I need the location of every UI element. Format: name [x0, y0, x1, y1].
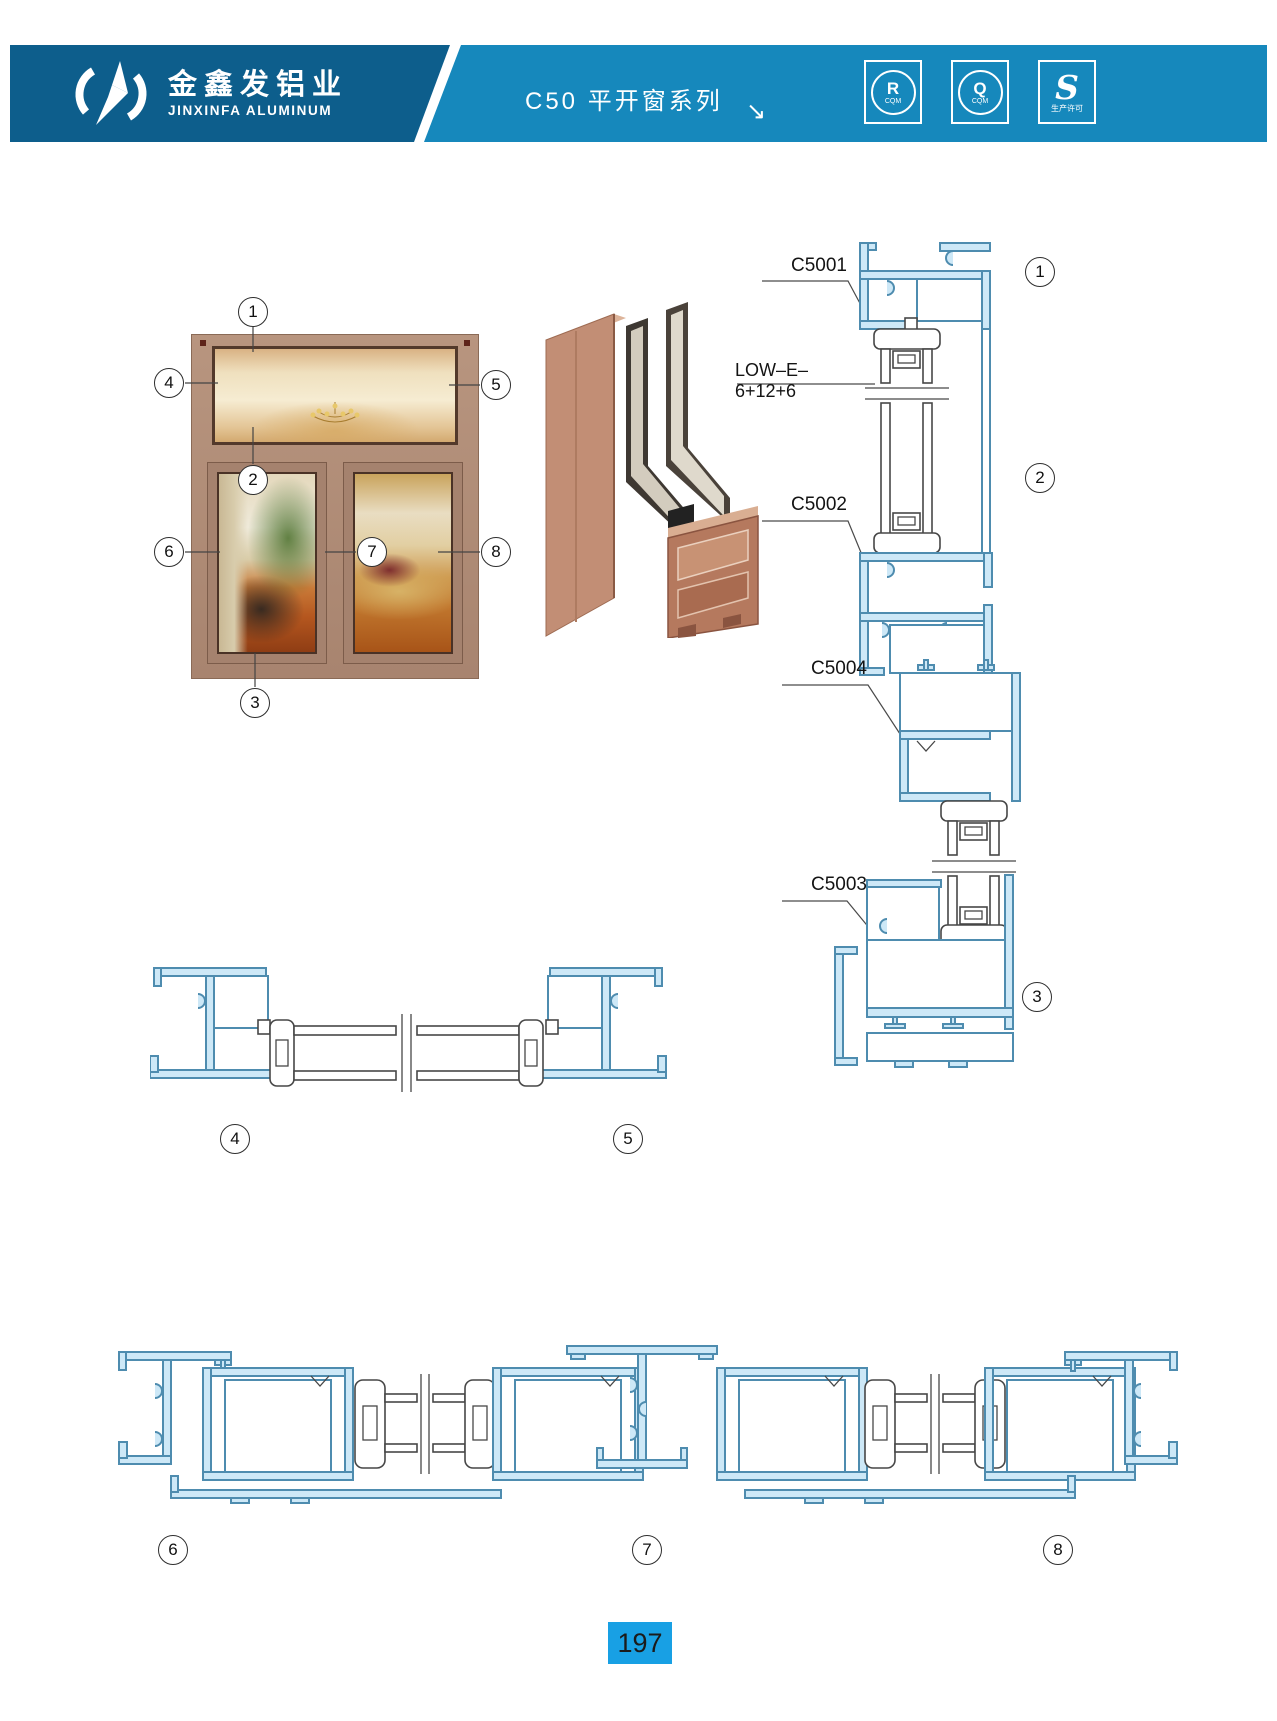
glazing-unit-1: [355, 1374, 495, 1474]
transom-glass: [212, 346, 458, 445]
callout-5-section: 5: [613, 1124, 643, 1154]
callout-3-section: 3: [1022, 982, 1052, 1012]
chandelier-icon: [303, 402, 367, 442]
right-jamb-profile: [540, 968, 666, 1078]
callout-5-window: 5: [481, 370, 511, 400]
cert-badge-s-caption: 生产许可: [1051, 105, 1083, 113]
cert-badge-r-symbol: R: [887, 80, 899, 97]
glazing-unit-lower: [932, 801, 1016, 945]
label-c5003: C5003: [782, 874, 867, 896]
callout-1-window: 1: [238, 297, 268, 327]
left-jamb-profile: [150, 968, 276, 1078]
brand-text: 金鑫发铝业 JINXINFA ALUMINUM: [168, 69, 348, 117]
cert-badge-r-circle: R CQM: [871, 70, 916, 115]
callout-2-section: 2: [1025, 463, 1055, 493]
label-c5001: C5001: [762, 255, 847, 277]
horizontal-section-jambs-drawing: [150, 958, 670, 1113]
cert-badge-r: R CQM: [864, 60, 922, 124]
cert-badge-q-symbol: Q: [973, 80, 986, 97]
callout-7-section: 7: [632, 1535, 662, 1565]
glazing-unit-plan: [270, 1014, 543, 1092]
callout-7-window: 7: [357, 537, 387, 567]
sill-profile: [835, 875, 1013, 1067]
horizontal-section-full-drawing: [105, 1340, 1185, 1510]
cert-badge-q-circle: Q CQM: [958, 70, 1003, 115]
brand-name-cn: 金鑫发铝业: [168, 69, 348, 102]
callout-8-window: 8: [481, 537, 511, 567]
cert-badge-r-caption: CQM: [885, 98, 901, 105]
page-number: 197: [608, 1622, 672, 1664]
brand-logo-icon: [68, 57, 154, 131]
sash-adapter-profile: [900, 660, 1020, 801]
glazing-unit-upper: [865, 329, 949, 553]
left-casement-sash: [208, 463, 326, 663]
header-title-block: C50 平开窗系列 ↘ R CQM Q CQM S 生产许可: [424, 45, 1267, 142]
diagonal-arrow-icon: ↘: [746, 97, 766, 126]
certification-badges: R CQM Q CQM S 生产许可: [864, 60, 1096, 124]
profile-corner-render: [518, 298, 763, 638]
label-low-e-glazing: LOW–E–6+12+6: [735, 360, 867, 402]
window-photo-figure: [192, 335, 478, 678]
series-title: C50 平开窗系列: [525, 81, 723, 116]
sash-stile-3: [717, 1368, 867, 1480]
sash-stile-1: [203, 1368, 353, 1480]
cert-badge-s-symbol: S: [1055, 71, 1079, 104]
callout-6-section: 6: [158, 1535, 188, 1565]
cert-badge-s-circle: S 生产许可: [1045, 70, 1090, 115]
callout-1-section: 1: [1025, 257, 1055, 287]
cert-badge-q-caption: CQM: [972, 98, 988, 105]
callout-3-window: 3: [240, 688, 270, 718]
label-c5002: C5002: [762, 494, 847, 516]
callout-6-window: 6: [154, 537, 184, 567]
brand-name-en: JINXINFA ALUMINUM: [168, 103, 348, 118]
frame-corner-dot: [464, 340, 470, 346]
transom-profile: [860, 553, 992, 675]
callout-4-window: 4: [154, 368, 184, 398]
label-c5004: C5004: [782, 658, 867, 680]
frame-corner-dot: [200, 340, 206, 346]
header-brand-block: 金鑫发铝业 JINXINFA ALUMINUM: [10, 45, 450, 142]
callout-4-section: 4: [220, 1124, 250, 1154]
left-casement-glass: [217, 472, 317, 654]
catalog-page: 金鑫发铝业 JINXINFA ALUMINUM C50 平开窗系列 ↘ R CQ…: [0, 0, 1277, 1721]
callout-8-section: 8: [1043, 1535, 1073, 1565]
callout-2-window: 2: [238, 465, 268, 495]
cert-badge-q: Q CQM: [951, 60, 1009, 124]
sash-stile-4: [985, 1368, 1135, 1480]
cert-badge-s: S 生产许可: [1038, 60, 1096, 124]
